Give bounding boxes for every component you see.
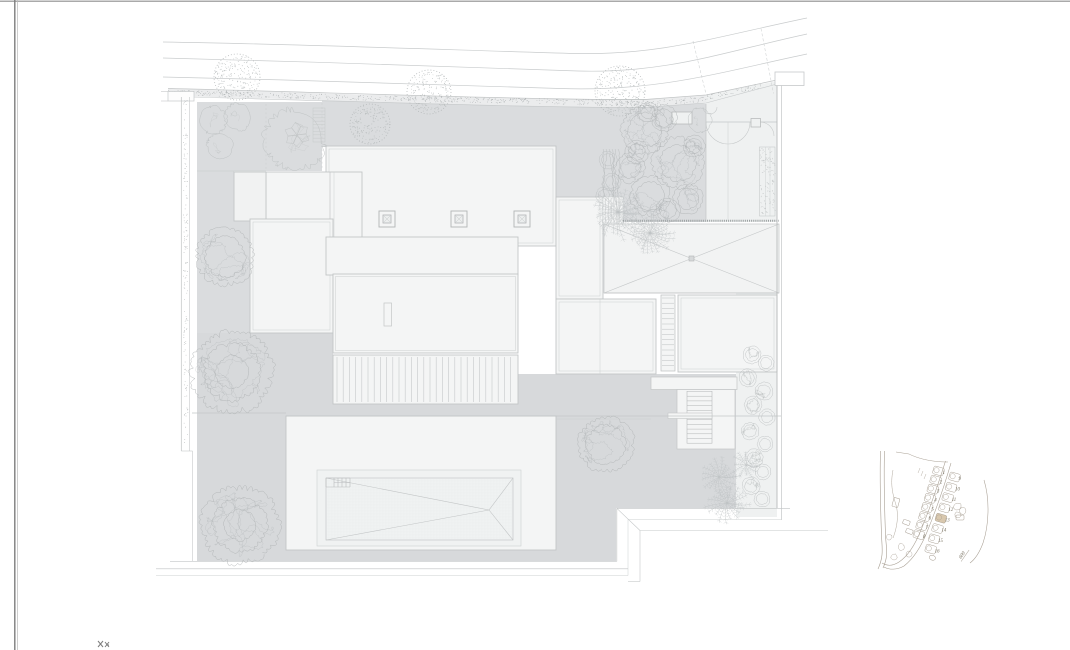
svg-text:15: 15 [938,539,943,544]
svg-text:14: 14 [942,529,947,534]
svg-text:9: 9 [959,477,962,482]
svg-text:13: 13 [945,518,950,523]
svg-text:3: 3 [937,489,940,494]
svg-text:5: 5 [931,508,934,513]
svg-text:12: 12 [948,508,953,513]
svg-text:16: 16 [935,549,940,554]
svg-text:4: 4 [934,499,937,504]
svg-text:10: 10 [955,488,960,493]
svg-text:1: 1 [943,471,945,476]
svg-text:2: 2 [940,480,943,485]
svg-text:11: 11 [952,498,956,503]
